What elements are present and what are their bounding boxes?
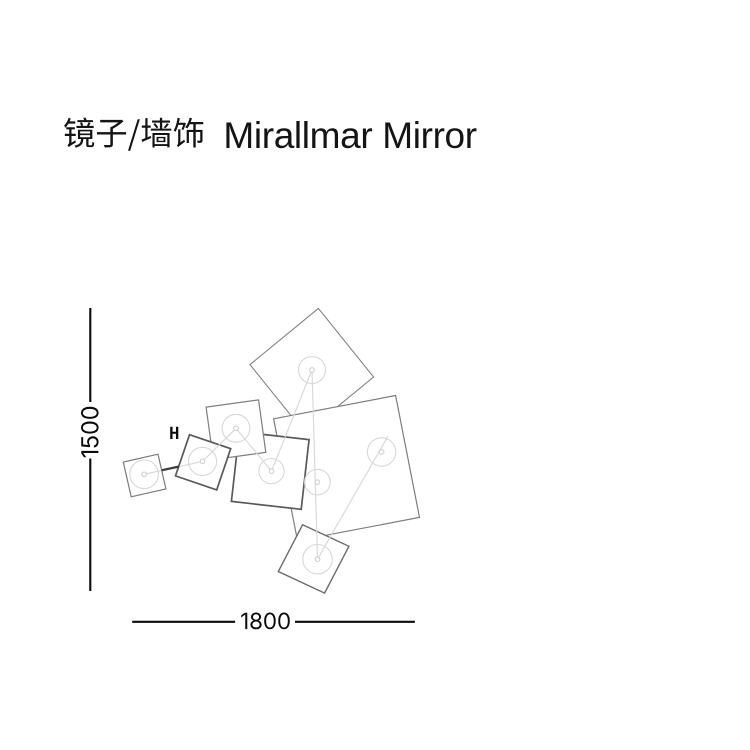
svg-text:Mirallmar Mirror: Mirallmar Mirror: [223, 115, 476, 156]
